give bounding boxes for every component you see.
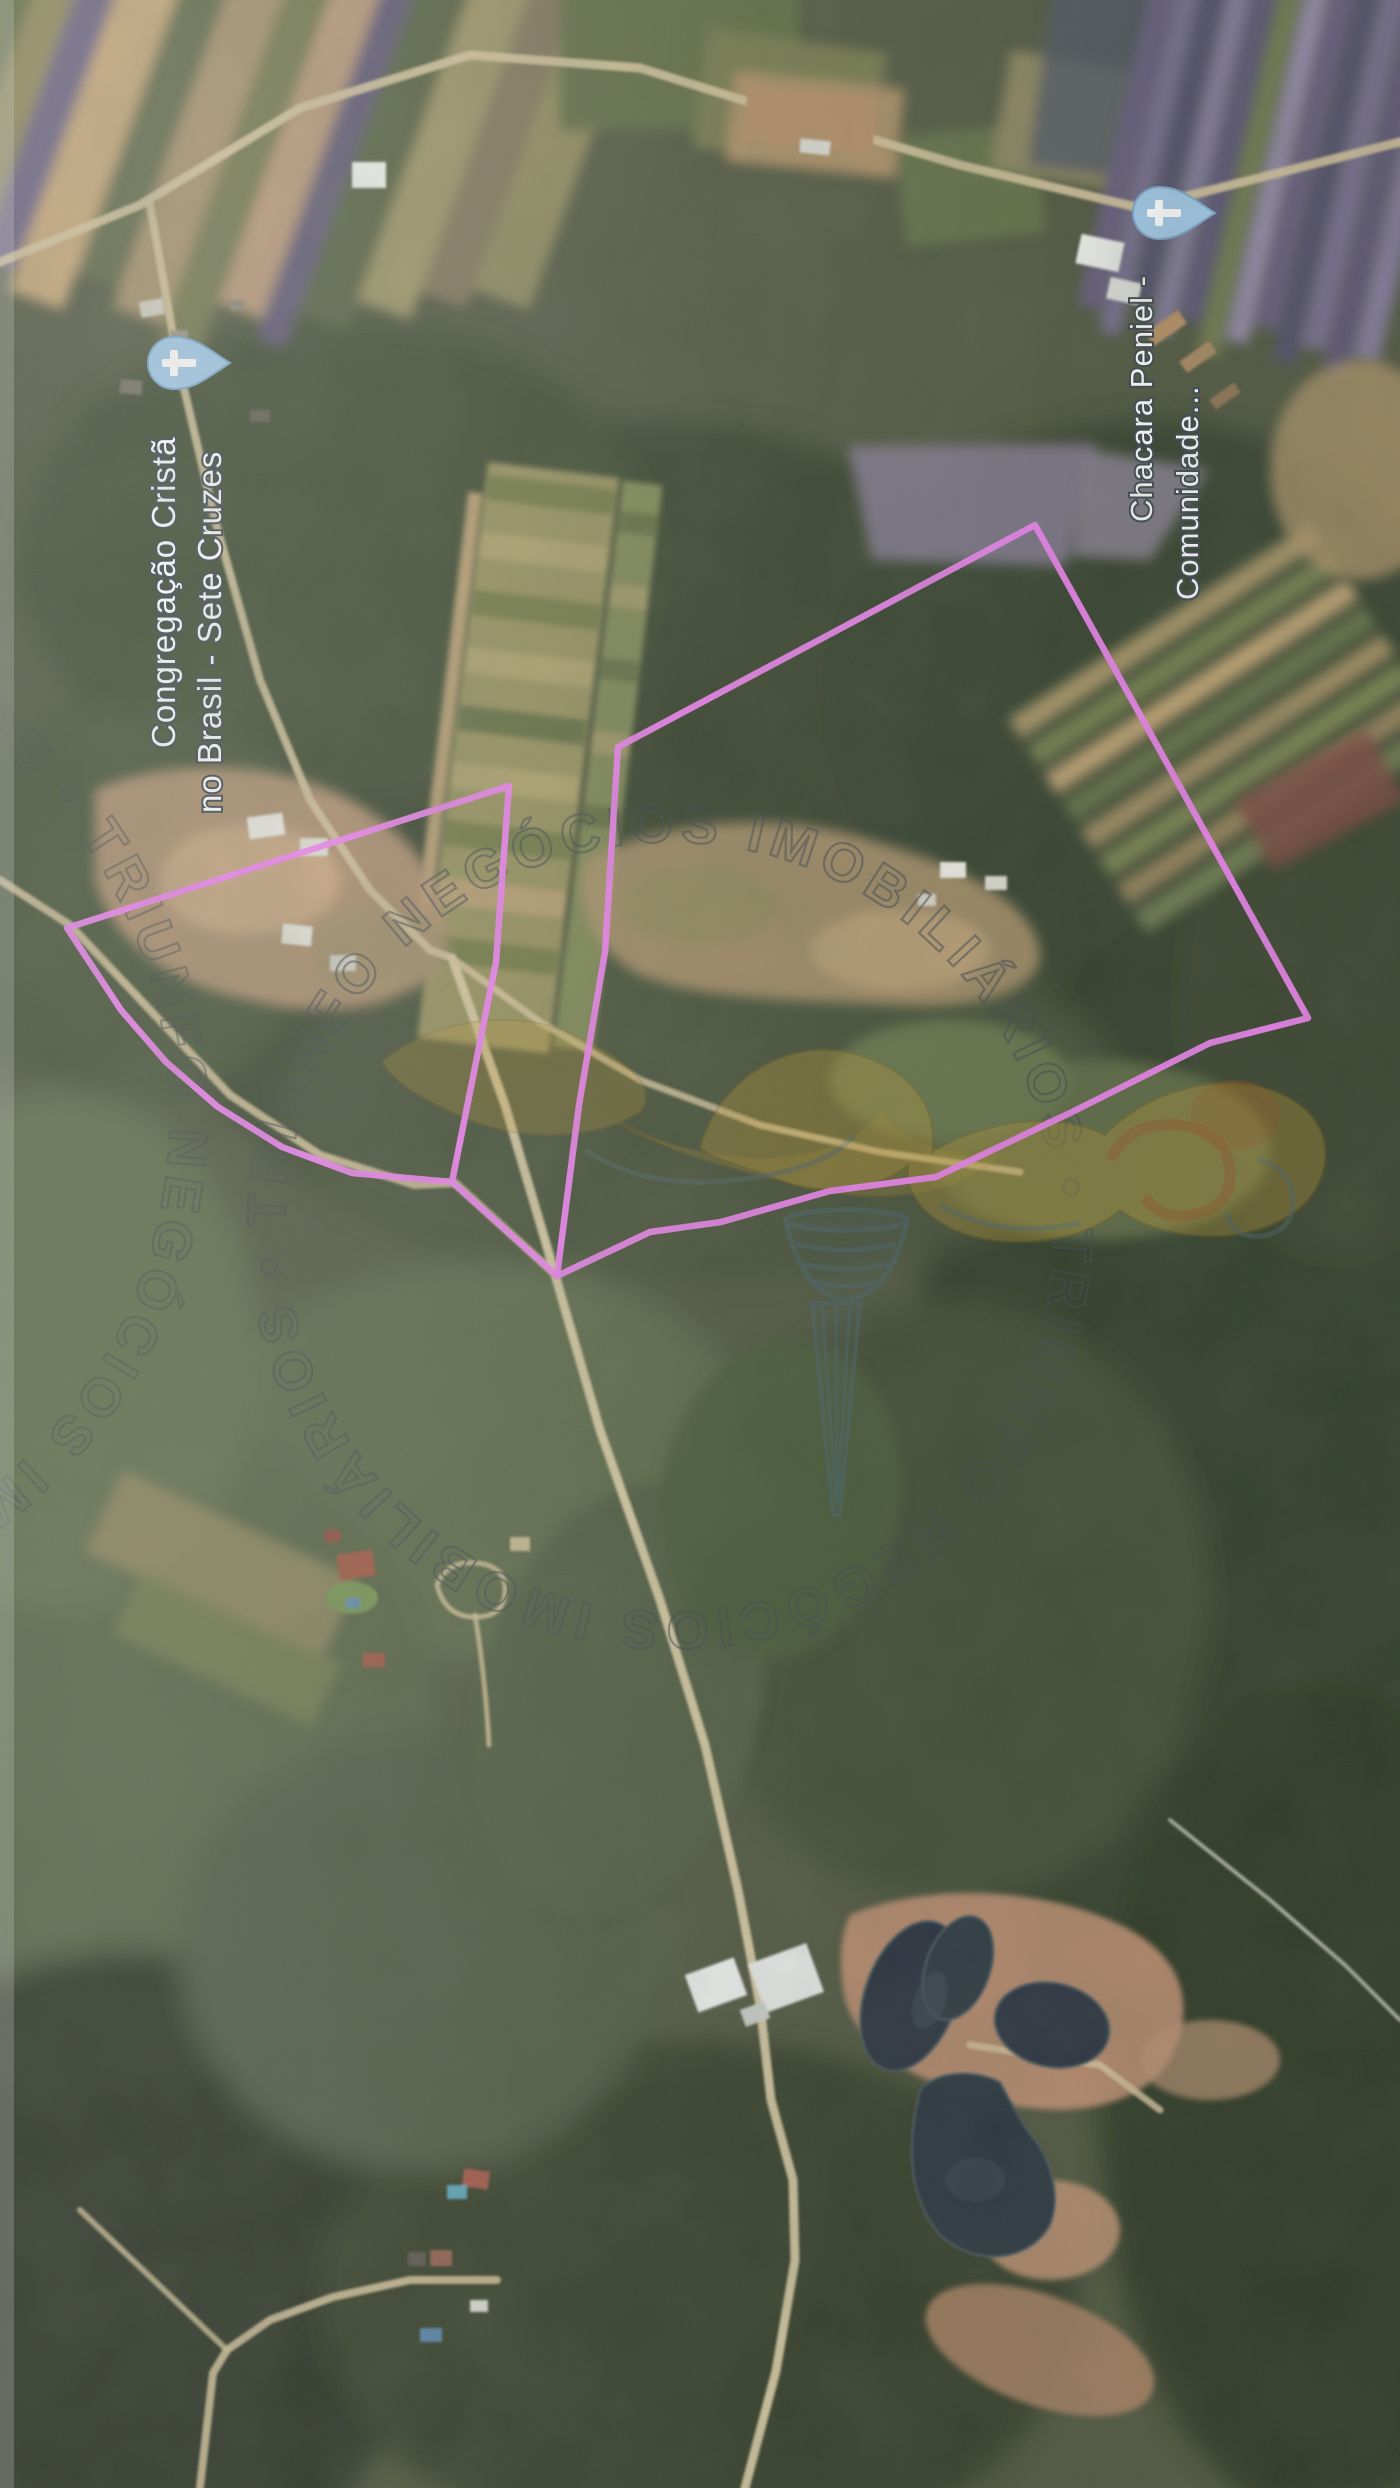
aerial-map-image: TRIUNFO NEGÓCIOS IMOBILIÁRIOS • TRIUNFO … (0, 0, 1400, 2488)
photo-artifacts (0, 0, 1400, 2488)
map-photo-stage: TRIUNFO NEGÓCIOS IMOBILIÁRIOS • TRIUNFO … (0, 0, 1400, 2488)
